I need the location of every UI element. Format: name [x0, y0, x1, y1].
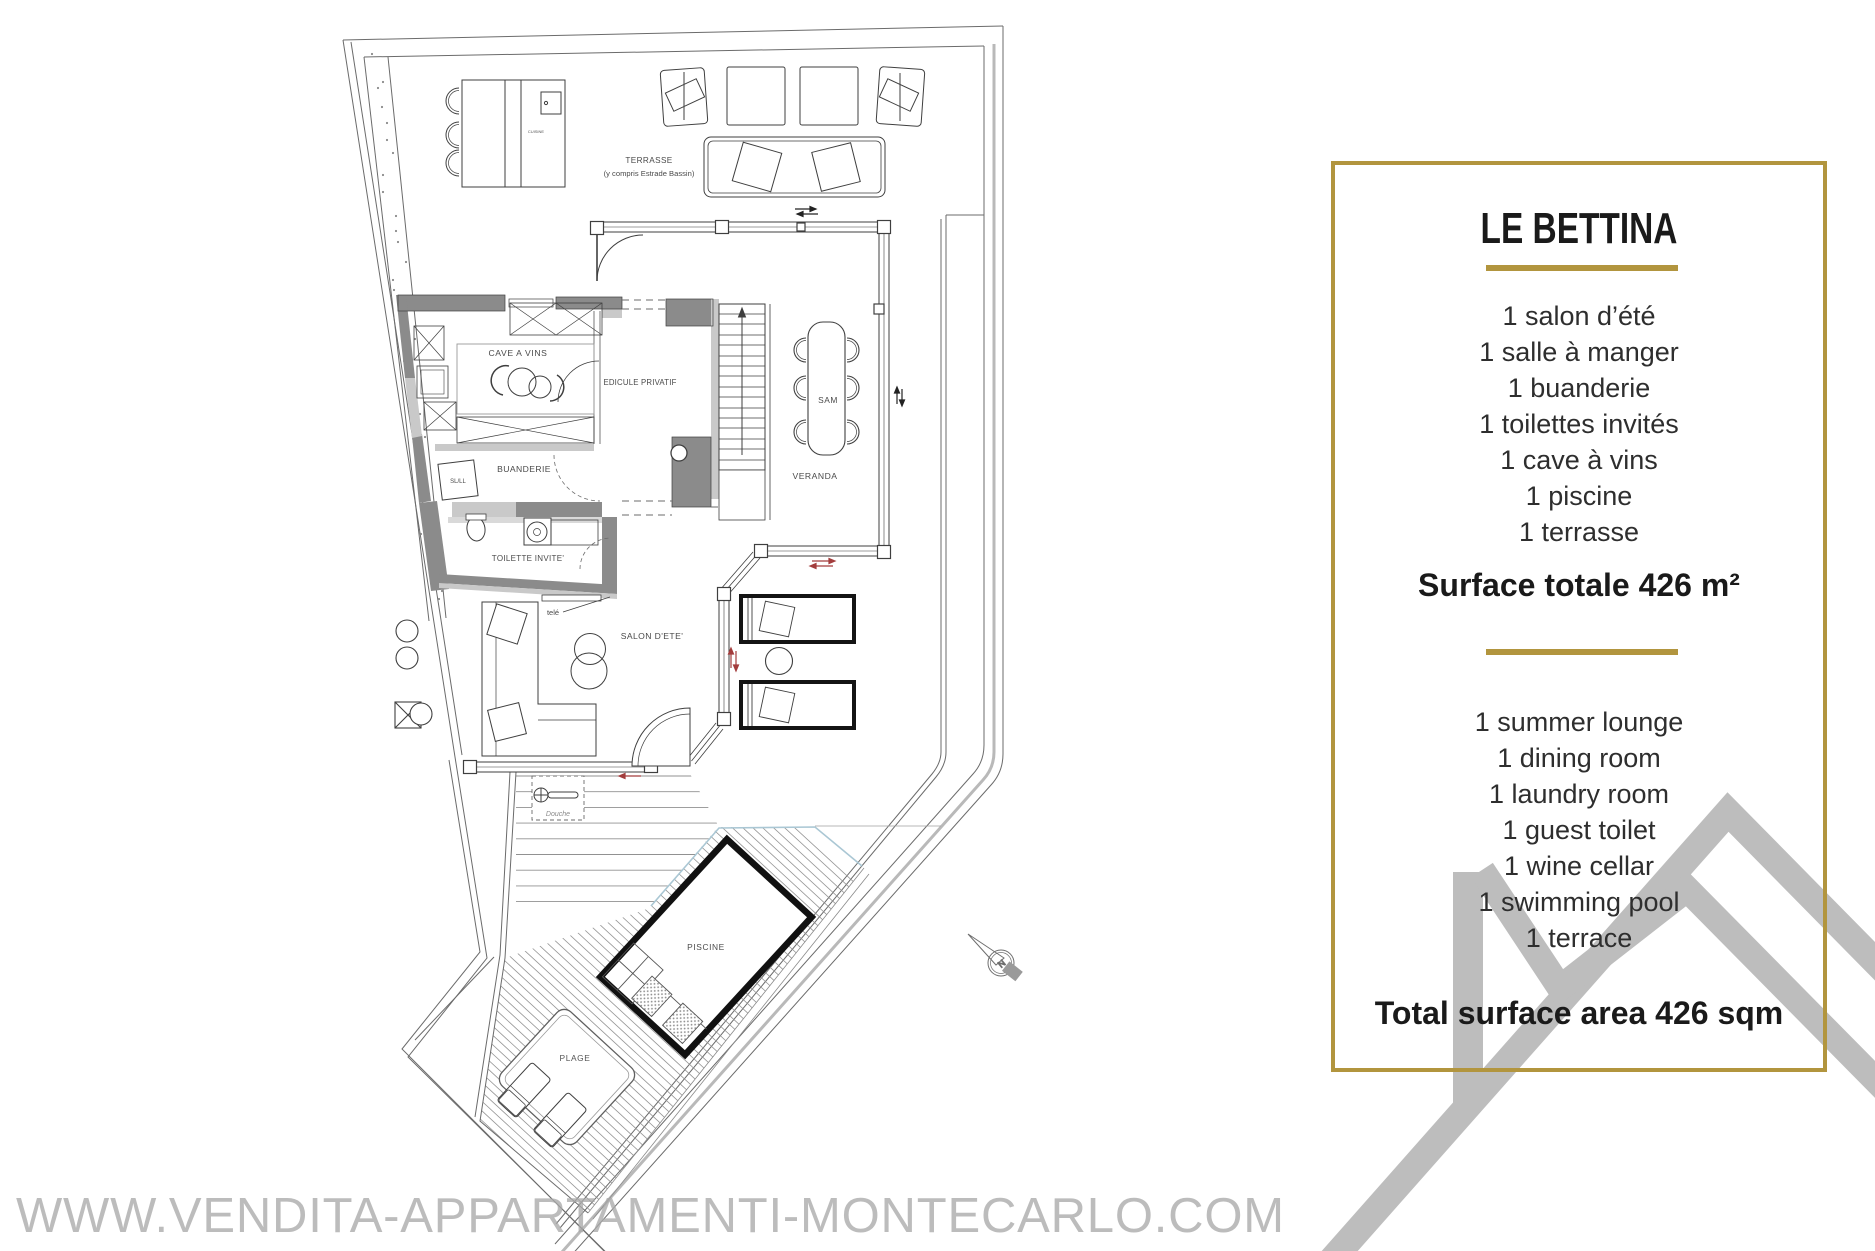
svg-text:SAM: SAM: [818, 395, 838, 405]
svg-text:PLAGE: PLAGE: [560, 1053, 591, 1063]
svg-text:VERANDA: VERANDA: [792, 471, 837, 481]
svg-text:Douche: Douche: [546, 811, 570, 818]
svg-text:EDICULE PRIVATIF: EDICULE PRIVATIF: [603, 378, 676, 387]
svg-text:SL/LL: SL/LL: [450, 479, 466, 485]
svg-text:TERRASSE: TERRASSE: [625, 156, 672, 165]
svg-text:PISCINE: PISCINE: [687, 942, 725, 952]
svg-text:telé: telé: [547, 608, 559, 617]
svg-text:CAVE A VINS: CAVE A VINS: [489, 348, 548, 358]
svg-text:SALON D'ETE': SALON D'ETE': [621, 631, 684, 641]
svg-text:(y compris Estrade Bassin): (y compris Estrade Bassin): [604, 169, 695, 178]
svg-text:WWW.VENDITA-APPARTAMENTI-MONTE: WWW.VENDITA-APPARTAMENTI-MONTECARLO.COM: [16, 1189, 1285, 1243]
svg-text:TOILETTE INVITE': TOILETTE INVITE': [492, 554, 565, 563]
svg-text:CUISINE: CUISINE: [528, 129, 545, 134]
svg-text:BUANDERIE: BUANDERIE: [497, 464, 551, 474]
